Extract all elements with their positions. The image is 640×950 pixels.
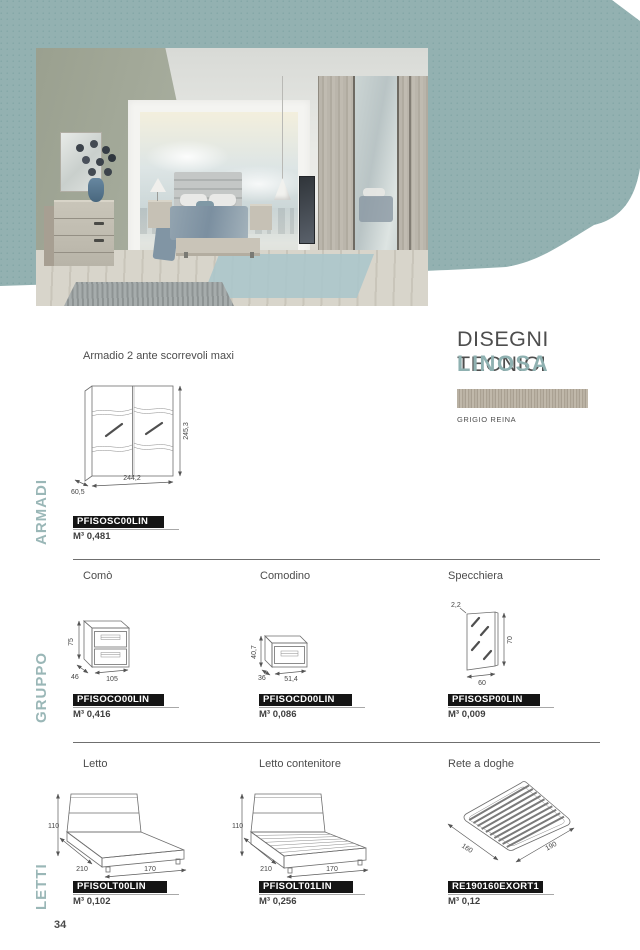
dim-depth-label: 46 bbox=[71, 674, 79, 681]
product-volume: M³ 0,102 bbox=[73, 896, 111, 907]
product-code-badge: PFISOSP00LIN bbox=[448, 694, 540, 706]
dim-height-label: 75 bbox=[68, 638, 75, 646]
product-title: Comodino bbox=[260, 570, 310, 582]
drawer-seam bbox=[54, 218, 114, 219]
specchiera-drawing: 2,2 70 60 bbox=[445, 592, 525, 690]
wardrobe-outline bbox=[85, 386, 173, 481]
dim-thickness-label: 2,2 bbox=[451, 602, 461, 609]
comodino-drawing: 40,7 36 51,4 bbox=[250, 598, 340, 682]
product-como: Comò 75 46 105 PFIS bbox=[58, 568, 238, 733]
product-title: Letto contenitore bbox=[259, 758, 341, 770]
dim-width-label: 160 bbox=[460, 843, 474, 855]
dim-width-label: 60 bbox=[478, 680, 486, 687]
product-code-badge: PFISOLT01LIN bbox=[259, 881, 353, 893]
product-title: Armadio 2 ante scorrevoli maxi bbox=[83, 350, 234, 362]
dim-width-label: 244,2 bbox=[123, 475, 141, 482]
dim-length-label: 210 bbox=[260, 866, 272, 873]
product-rete: Rete a doghe 160 190 bbox=[433, 755, 623, 925]
product-letto-contenitore: Letto contenitore 110 bbox=[244, 755, 434, 925]
bed-duvet bbox=[170, 206, 248, 240]
drawer-seam bbox=[54, 252, 114, 253]
como-dimensions: 75 46 105 bbox=[68, 621, 128, 683]
specchiera-dimensions: 2,2 70 60 bbox=[451, 602, 514, 687]
dresser bbox=[54, 200, 114, 266]
letto-contenitore-dimensions: 110 210 170 bbox=[232, 794, 368, 877]
code-underline bbox=[73, 529, 179, 530]
como-drawing: 75 46 105 bbox=[58, 600, 148, 688]
catalog-page: DISEGNI TECNICI LINOSA GRIGIO REINA ARMA… bbox=[0, 0, 640, 950]
collection-name: LINOSA bbox=[457, 351, 549, 377]
product-letto: Letto 110 210 170 PFISOLT00L bbox=[58, 755, 248, 925]
product-code-badge: PFISOCD00LIN bbox=[259, 694, 352, 706]
grey-rug bbox=[64, 282, 234, 306]
product-code-badge: PFISOLT00LIN bbox=[73, 881, 167, 893]
nightstand-left bbox=[148, 200, 172, 228]
product-specchiera: Specchiera 2,2 70 60 PFISOSP00LIN M³ bbox=[433, 568, 613, 733]
section-divider bbox=[73, 742, 600, 743]
dim-width-label: 105 bbox=[106, 676, 118, 683]
wardrobe-drawing: 245,3 244,2 60,5 bbox=[62, 376, 207, 501]
product-volume: M³ 0,12 bbox=[448, 896, 480, 907]
wall-mirror-frame bbox=[299, 176, 315, 244]
dim-length-label: 210 bbox=[76, 866, 88, 873]
product-code-badge: PFISOCO00LIN bbox=[73, 694, 164, 706]
finish-swatch bbox=[457, 389, 588, 408]
product-title: Specchiera bbox=[448, 570, 503, 582]
finish-label: GRIGIO REINA bbox=[457, 415, 516, 424]
letto-contenitore-outline bbox=[251, 794, 366, 873]
product-armadio: Armadio 2 ante scorrevoli maxi bbox=[58, 348, 278, 548]
como-outline bbox=[84, 621, 129, 667]
rete-drawing: 160 190 bbox=[440, 772, 580, 870]
product-code-badge: PFISOSC00LIN bbox=[73, 516, 164, 528]
letto-contenitore-drawing: 110 210 170 bbox=[232, 780, 382, 880]
product-volume: M³ 0,086 bbox=[259, 709, 297, 720]
wardrobe-dimensions: 245,3 244,2 60,5 bbox=[71, 386, 190, 496]
dim-width-label: 170 bbox=[144, 866, 156, 873]
drawer-handle bbox=[94, 239, 104, 242]
comodino-outline bbox=[265, 636, 307, 667]
product-code-badge: RE190160EXORT1 bbox=[448, 881, 543, 893]
drawer-seam bbox=[54, 235, 114, 236]
dim-height-label: 110 bbox=[48, 823, 59, 830]
dim-length-label: 190 bbox=[544, 841, 558, 853]
code-underline bbox=[448, 707, 554, 708]
letto-drawing: 110 210 170 bbox=[48, 780, 198, 880]
code-underline bbox=[73, 707, 179, 708]
page-number: 34 bbox=[54, 919, 66, 931]
bed-foot bbox=[250, 252, 254, 258]
dim-height-label: 110 bbox=[232, 823, 243, 830]
pendant-cord bbox=[282, 76, 283, 180]
product-title: Rete a doghe bbox=[448, 758, 514, 770]
letto-dimensions: 110 210 170 bbox=[48, 794, 186, 877]
specchiera-outline bbox=[467, 612, 498, 670]
letto-outline bbox=[67, 794, 184, 872]
product-title: Comò bbox=[83, 570, 112, 582]
teal-rug bbox=[202, 254, 374, 298]
vase bbox=[88, 178, 104, 202]
dim-width-label: 51,4 bbox=[284, 676, 298, 683]
dim-height-label: 70 bbox=[507, 636, 514, 644]
product-volume: M³ 0,256 bbox=[259, 896, 297, 907]
flower-bouquet bbox=[76, 144, 84, 152]
section-label-armadi: ARMADI bbox=[33, 479, 50, 545]
room-photo bbox=[36, 48, 428, 306]
dim-width-label: 170 bbox=[326, 866, 338, 873]
table-lamp-stem bbox=[157, 192, 158, 201]
dim-depth-label: 60,5 bbox=[71, 489, 85, 496]
mirror-reflection-bed bbox=[359, 196, 393, 222]
code-underline bbox=[259, 894, 365, 895]
dim-depth-label: 36 bbox=[258, 675, 266, 682]
product-comodino: Comodino 40,7 36 51,4 PFISOCD00LIN M³ bbox=[244, 568, 424, 733]
bed-platform bbox=[176, 238, 260, 256]
product-volume: M³ 0,481 bbox=[73, 531, 111, 542]
code-underline bbox=[73, 894, 179, 895]
section-divider bbox=[73, 559, 600, 560]
product-volume: M³ 0,009 bbox=[448, 709, 486, 720]
section-label-gruppo: GRUPPO bbox=[33, 652, 50, 723]
code-underline bbox=[448, 894, 554, 895]
code-underline bbox=[259, 707, 365, 708]
product-title: Letto bbox=[83, 758, 107, 770]
product-volume: M³ 0,416 bbox=[73, 709, 111, 720]
nightstand-right bbox=[250, 204, 272, 230]
dim-height-label: 245,3 bbox=[183, 422, 190, 440]
dim-height-label: 40,7 bbox=[251, 645, 258, 659]
bed-foot bbox=[184, 252, 188, 258]
drawer-handle bbox=[94, 222, 104, 225]
